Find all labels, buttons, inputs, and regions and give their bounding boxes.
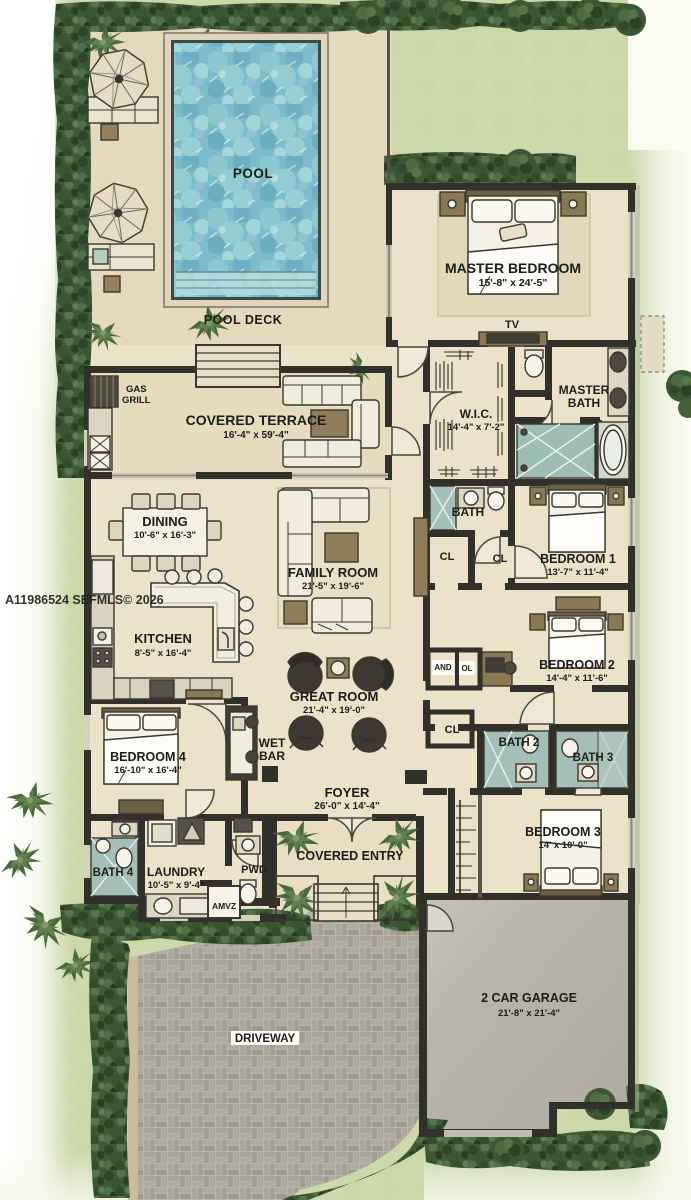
svg-text:LAUNDRY: LAUNDRY [147,865,205,879]
svg-text:2 CAR GARAGE: 2 CAR GARAGE [481,991,577,1005]
svg-text:26'-0" x 14'-4": 26'-0" x 14'-4" [314,801,380,812]
svg-text:POOL DECK: POOL DECK [204,313,283,327]
svg-text:BEDROOM 4: BEDROOM 4 [110,750,186,764]
svg-text:BAR: BAR [259,749,285,763]
svg-text:MASTER BEDROOM: MASTER BEDROOM [445,260,581,276]
svg-text:16'-4" x 59'-4": 16'-4" x 59'-4" [223,430,289,441]
svg-text:14'-4" x 11'-6": 14'-4" x 11'-6" [546,673,608,684]
svg-text:14' x 10'-0": 14' x 10'-0" [538,840,587,851]
svg-text:DINING: DINING [142,514,188,529]
svg-text:GRILL: GRILL [122,395,151,406]
svg-text:DRIVEWAY: DRIVEWAY [235,1033,296,1045]
svg-text:15'-8" x 24'-5": 15'-8" x 24'-5" [479,277,548,289]
svg-text:8'-5" x 16'-4": 8'-5" x 16'-4" [135,648,192,659]
svg-text:10'-6" x 16'-3": 10'-6" x 16'-3" [134,530,196,541]
svg-text:21'-4" x 19'-0": 21'-4" x 19'-0" [303,705,365,716]
svg-text:FAMILY ROOM: FAMILY ROOM [288,565,378,580]
svg-text:16'-10" x 16'-4": 16'-10" x 16'-4" [114,765,181,776]
svg-text:KITCHEN: KITCHEN [134,631,192,646]
svg-text:TV: TV [505,319,520,331]
svg-text:BEDROOM 1: BEDROOM 1 [540,552,616,566]
svg-text:CL: CL [445,724,460,736]
svg-text:CL: CL [440,551,455,563]
svg-text:FOYER: FOYER [325,785,370,800]
svg-text:21'-8" x 21'-4": 21'-8" x 21'-4" [498,1008,560,1019]
svg-text:COVERED TERRACE: COVERED TERRACE [186,412,327,428]
svg-text:BATH 4: BATH 4 [93,867,134,879]
svg-text:PWD: PWD [241,864,267,876]
svg-text:BATH: BATH [452,505,484,519]
svg-text:BATH 3: BATH 3 [573,752,614,764]
svg-text:GAS: GAS [126,384,147,395]
svg-text:10'-5" x 9'-4": 10'-5" x 9'-4" [148,880,205,891]
svg-text:CL: CL [493,553,508,565]
svg-text:COVERED ENTRY: COVERED ENTRY [296,849,404,863]
svg-text:AMVZ: AMVZ [212,901,236,911]
svg-text:MASTER: MASTER [559,383,610,397]
svg-text:14'-4" x 7'-2": 14'-4" x 7'-2" [448,422,505,433]
svg-text:21'-5" x 19'-6": 21'-5" x 19'-6" [302,581,364,592]
svg-text:AND: AND [434,663,452,672]
svg-text:A11986524 SEFMLS© 2026: A11986524 SEFMLS© 2026 [5,593,164,607]
svg-text:W.I.C.: W.I.C. [460,407,493,421]
svg-text:GREAT ROOM: GREAT ROOM [290,689,379,704]
svg-text:WET: WET [259,736,286,750]
svg-text:POOL: POOL [233,166,273,181]
svg-text:BEDROOM 2: BEDROOM 2 [539,658,615,672]
svg-text:OL: OL [461,664,472,673]
svg-text:BATH: BATH [568,396,600,410]
svg-text:BATH 2: BATH 2 [499,737,540,749]
svg-text:13'-7" x 11'-4": 13'-7" x 11'-4" [547,567,609,578]
svg-text:BEDROOM 3: BEDROOM 3 [525,825,601,839]
